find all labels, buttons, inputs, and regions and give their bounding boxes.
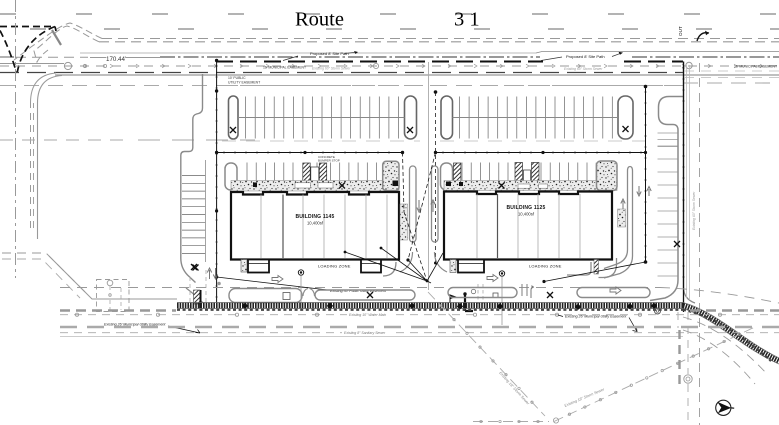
svg-text:Existing 8" Sanitary Sewer: Existing 8" Sanitary Sewer xyxy=(344,331,386,335)
svg-text:3 1: 3 1 xyxy=(454,9,480,31)
svg-text:Route: Route xyxy=(295,9,344,31)
svg-text:UTILITY EASEMENT: UTILITY EASEMENT xyxy=(228,81,260,85)
svg-text:Existing 26' Municipal Utility: Existing 26' Municipal Utility Easement xyxy=(565,315,627,319)
svg-text:170.44': 170.44' xyxy=(106,56,126,63)
svg-text:BUILDING 1145: BUILDING 1145 xyxy=(295,214,334,220)
svg-text:10,400sf: 10,400sf xyxy=(518,212,535,217)
svg-text:Existing 60" Storm Sewer: Existing 60" Storm Sewer xyxy=(312,67,351,71)
svg-text:Proposed 8' Site Path: Proposed 8' Site Path xyxy=(566,54,605,59)
svg-text:LOADING ZONE: LOADING ZONE xyxy=(529,264,562,269)
svg-text:Existing 10" Water Main: Existing 10" Water Main xyxy=(349,313,386,317)
svg-text:BUILDING 1125: BUILDING 1125 xyxy=(506,205,545,211)
svg-text:16' MUNICIPAL EASEMENT: 16' MUNICIPAL EASEMENT xyxy=(734,65,777,69)
svg-text:LOADING ZONE: LOADING ZONE xyxy=(318,264,351,269)
svg-text:BUMPER STOP: BUMPER STOP xyxy=(318,159,340,163)
svg-text:16' MUNICIPAL EASEMENT: 16' MUNICIPAL EASEMENT xyxy=(263,66,306,70)
svg-text:Proposed 8' Site Path: Proposed 8' Site Path xyxy=(310,51,349,56)
svg-text:OUT: OUT xyxy=(678,26,683,36)
svg-text:10' PUBLIC: 10' PUBLIC xyxy=(228,76,246,80)
svg-text:Existing 60" Storm Sewer: Existing 60" Storm Sewer xyxy=(692,191,696,230)
svg-text:Existing 60" Storm Sewer: Existing 60" Storm Sewer xyxy=(564,67,603,71)
svg-text:10,400sf: 10,400sf xyxy=(307,221,324,226)
